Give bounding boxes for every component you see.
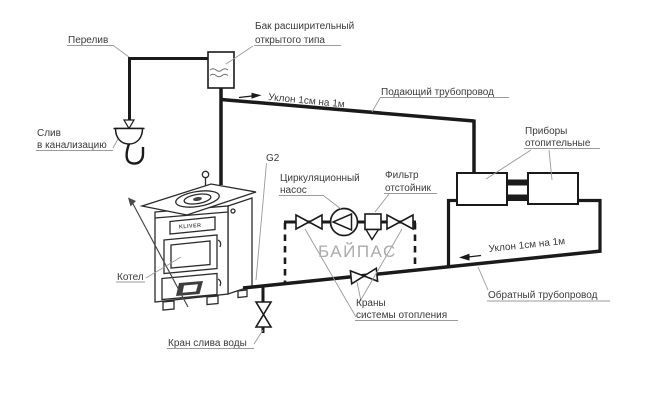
label-bypass: БАЙПАС <box>318 242 397 261</box>
leader-overflow <box>114 46 129 57</box>
supply-flow-arrow-icon <box>239 93 262 99</box>
vent-opening <box>183 284 199 292</box>
funnel-s-trap <box>127 144 143 164</box>
leader-return <box>478 267 488 290</box>
label-tank-line2: открытого типа <box>255 35 325 46</box>
label-heaters-line1: Приборы <box>525 125 567 137</box>
label-filter-line2: отстойник <box>385 183 432 194</box>
radiator-1 <box>457 173 507 205</box>
drain-funnel-bowl <box>116 129 143 145</box>
leader-sewer <box>113 139 118 148</box>
leader-pump <box>324 196 341 209</box>
leader-drain <box>254 330 263 344</box>
diagram-canvas: KLIVER <box>0 0 670 413</box>
label-filter-line1: Фильтр <box>385 170 419 181</box>
boiler-foot-left <box>163 301 174 310</box>
label-sewer-line2: в канализацию <box>37 140 107 151</box>
bypass-valve-left <box>296 215 322 229</box>
leader-valve-right <box>359 229 402 303</box>
heating-system-diagram: KLIVER <box>0 0 670 413</box>
radiator-connector-bottom <box>507 195 528 202</box>
label-pump-line1: Циркуляционный <box>280 173 360 184</box>
label-pump-line2: насос <box>280 185 307 196</box>
label-valves-line2: системы отопления <box>356 310 447 321</box>
poker-handle-arrow <box>128 198 136 207</box>
label-tank-line1: Бак расширительный <box>255 21 354 32</box>
supply-pipe-sloped <box>221 100 474 122</box>
expansion-tank <box>208 52 234 88</box>
boiler-foot-right <box>207 296 218 305</box>
boiler-foot-side <box>238 290 247 298</box>
leader-heater-1 <box>486 150 531 179</box>
label-return-pipe: Обратный трубопровод <box>488 289 598 301</box>
label-sewer-line1: Слив <box>37 128 61 139</box>
return-pipe-sloped <box>243 251 602 288</box>
radiator-2 <box>528 173 578 204</box>
boiler-illustration: KLIVER <box>128 171 256 310</box>
label-return-slope: Уклон 1см на 1м <box>488 236 566 255</box>
label-drain-valve: Кран слива воды <box>168 338 247 349</box>
label-valves-line1: Краны <box>356 298 386 309</box>
leader-g2 <box>256 163 267 280</box>
bypass-valve-right <box>387 215 413 229</box>
radiator-connector-top <box>507 180 528 186</box>
side-latch <box>231 209 235 213</box>
filter-symbol <box>365 214 381 230</box>
drain-valve <box>256 302 271 327</box>
filter-sump-flap <box>366 230 379 240</box>
middle-door-window <box>171 241 210 268</box>
label-boiler: Котел <box>117 272 144 283</box>
funnel-arrow-icon <box>124 120 134 129</box>
leader-filter <box>375 194 389 212</box>
return-line-valve <box>350 268 377 284</box>
leader-supply <box>372 98 380 112</box>
knob <box>202 171 208 177</box>
label-g2: G2 <box>266 153 280 164</box>
return-flow-arrow-icon <box>459 254 481 261</box>
label-overflow: Перелив <box>68 35 108 46</box>
label-supply-pipe: Подающий трубопровод <box>381 86 494 98</box>
label-heaters-line2: отопительные <box>525 138 591 149</box>
